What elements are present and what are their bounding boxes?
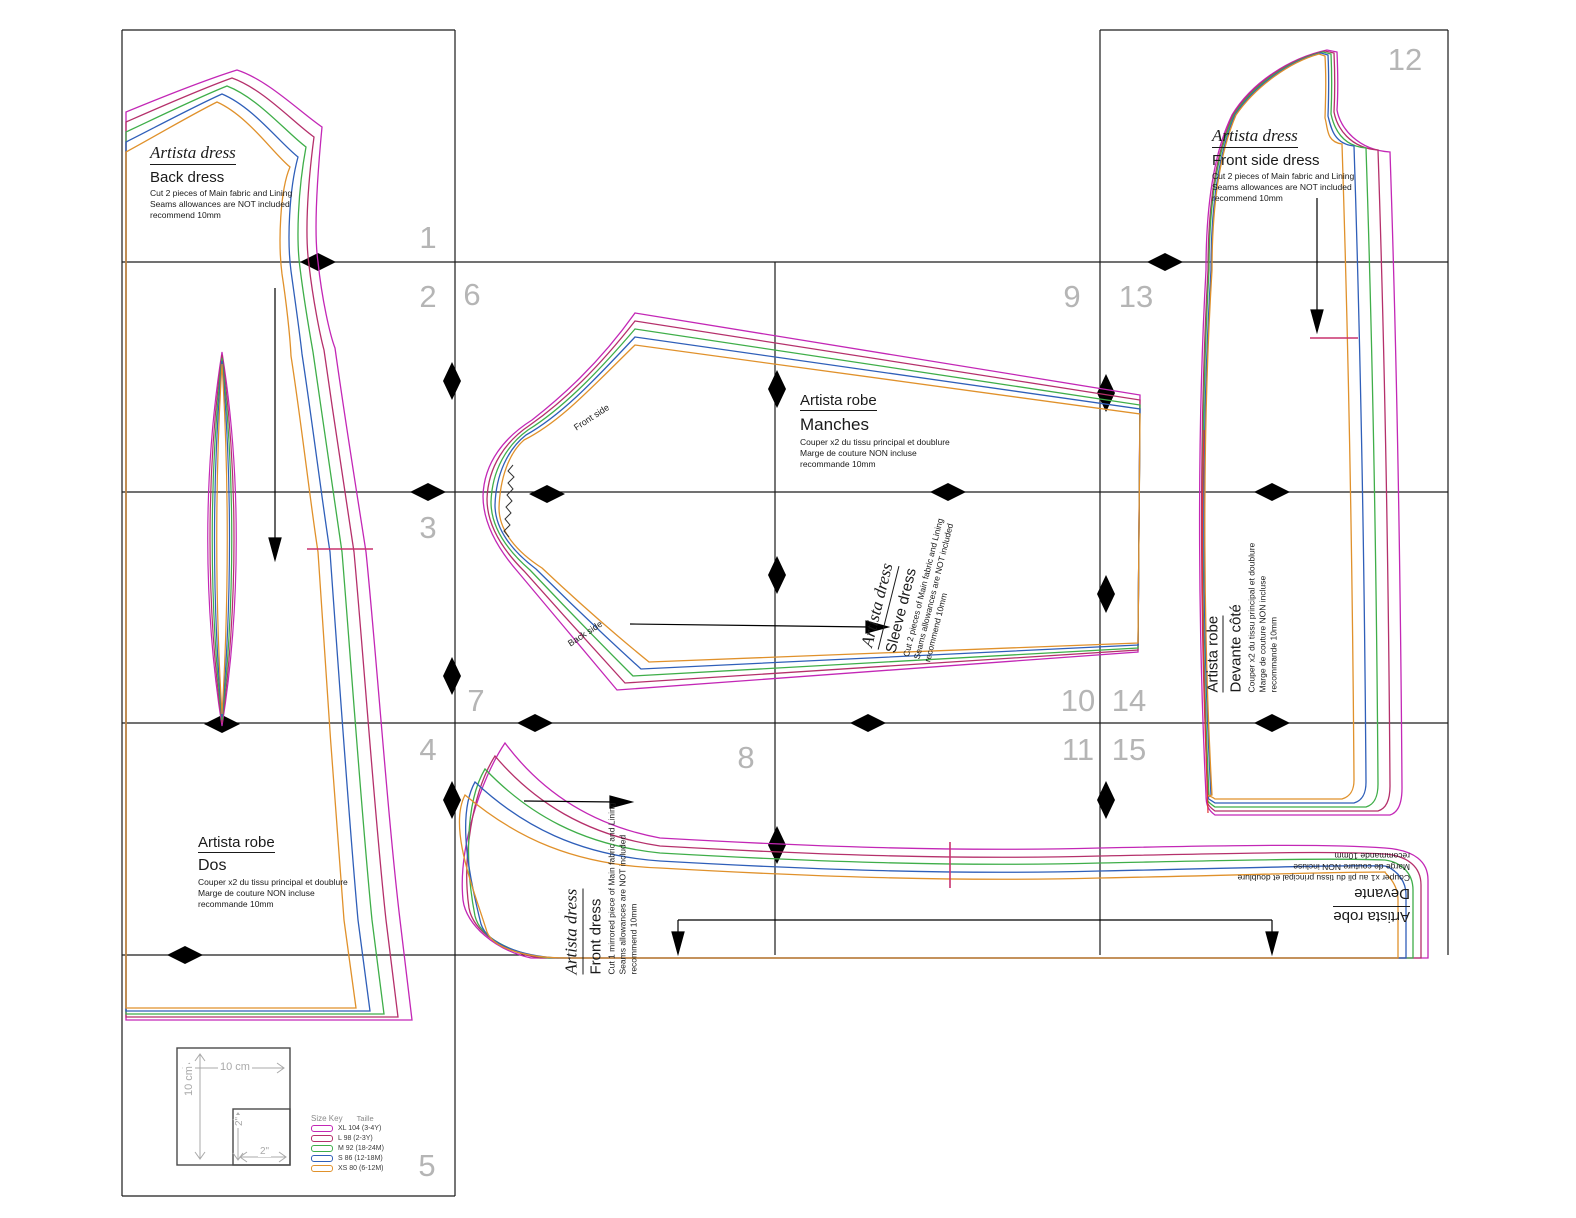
- size-key-taille: Taille: [357, 1114, 374, 1123]
- pattern-sheet: 1 2 3 4 5 6 7 8 9 10 11 12 13 14 15 Arti…: [0, 0, 1576, 1218]
- size-key-title: Size Key: [311, 1114, 343, 1123]
- label-devante-cote: Artista robe Devante côté Couper x2 du t…: [1205, 513, 1280, 693]
- size-swatch: [311, 1135, 333, 1142]
- inner-width-label: 2": [258, 1146, 271, 1157]
- tile-number-6: 6: [463, 277, 480, 313]
- size-swatch: [311, 1125, 333, 1132]
- size-label: L 98 (2-3Y): [338, 1135, 373, 1142]
- tile-number-8: 8: [737, 740, 754, 776]
- tile-number-2: 2: [419, 279, 436, 315]
- back-grain-arrow: [269, 288, 281, 560]
- tile-number-14: 14: [1112, 683, 1146, 719]
- size-key-rows: XL 104 (3-4Y)L 98 (2-3Y)M 92 (18-24M)S 8…: [311, 1123, 421, 1173]
- tile-number-4: 4: [419, 732, 436, 768]
- size-swatch: [311, 1145, 333, 1152]
- size-key-row: XS 80 (6-12M): [311, 1163, 421, 1173]
- narrow-tie-piece-outline: [208, 352, 237, 726]
- size-key-row: M 92 (18-24M): [311, 1143, 421, 1153]
- piece-note: Couper x2 du tissu principal et doublure…: [198, 877, 388, 910]
- gather-squiggle: [504, 465, 514, 537]
- scale-height-label: 10 cm: [183, 1064, 195, 1098]
- piece-title: Artista dress: [562, 889, 584, 975]
- piece-title: Artista robe: [198, 834, 275, 853]
- size-swatch: [311, 1155, 333, 1162]
- tile-number-3: 3: [419, 510, 436, 546]
- size-label: M 92 (18-24M): [338, 1145, 384, 1152]
- piece-note: Couper x2 du tissu principal et doublure…: [800, 437, 1000, 470]
- piece-name: Manches: [800, 415, 1000, 435]
- tile-number-15: 15: [1112, 732, 1146, 768]
- tile-number-13: 13: [1119, 279, 1153, 315]
- inner-height-label: 2": [234, 1115, 245, 1128]
- size-key-row: L 98 (2-3Y): [311, 1133, 421, 1143]
- scale-width-label: 10 cm: [218, 1061, 252, 1073]
- size-key: Size KeyTaille XL 104 (3-4Y)L 98 (2-3Y)M…: [311, 1114, 421, 1173]
- piece-title: Artista robe: [1333, 906, 1410, 925]
- tile-number-12: 12: [1388, 42, 1422, 78]
- piece-title: Artista dress: [1212, 126, 1298, 148]
- piece-note: Couper x1 au pli du tissu principal et d…: [1215, 850, 1410, 883]
- piece-note: Cut 2 pieces of Main fabric and Lining S…: [150, 188, 292, 221]
- label-devante: Artista robe Devante Couper x1 au pli du…: [1215, 850, 1410, 925]
- label-manches: Artista robe Manches Couper x2 du tissu …: [800, 392, 1000, 470]
- piece-title: Artista dress: [150, 143, 236, 165]
- piece-name: Dos: [198, 857, 388, 875]
- size-label: XS 80 (6-12M): [338, 1165, 384, 1172]
- label-dos: Artista robe Dos Couper x2 du tissu prin…: [198, 834, 388, 910]
- front-side-grain-arrow: [1311, 198, 1323, 332]
- label-front-dress: Artista dress Front dress Cut 1 mirrored…: [562, 790, 640, 975]
- tile-number-10: 10: [1061, 683, 1095, 719]
- tile-number-1: 1: [419, 220, 436, 256]
- size-label: S 86 (12-18M): [338, 1155, 383, 1162]
- piece-name: Devante: [1215, 885, 1410, 902]
- piece-note: Cut 2 pieces of Main fabric and Lining S…: [1212, 171, 1397, 204]
- fold-bracket: [672, 920, 1278, 954]
- piece-note: Couper x2 du tissu principal et doublure…: [1247, 513, 1280, 693]
- size-swatch: [311, 1165, 333, 1172]
- piece-title: Artista robe: [1205, 616, 1224, 693]
- size-key-row: XL 104 (3-4Y): [311, 1123, 421, 1133]
- label-front-side-dress: Artista dress Front side dress Cut 2 pie…: [1212, 126, 1397, 204]
- piece-name: Back dress: [150, 169, 292, 186]
- size-key-row: S 86 (12-18M): [311, 1153, 421, 1163]
- piece-note: Cut 1 mirrored piece of Main fabric and …: [607, 790, 640, 975]
- tile-number-7: 7: [467, 683, 484, 719]
- piece-name: Devante côté: [1228, 513, 1245, 693]
- tile-number-9: 9: [1063, 279, 1080, 315]
- piece-name: Front side dress: [1212, 152, 1397, 169]
- piece-name: Front dress: [588, 790, 605, 975]
- tile-number-11: 11: [1062, 732, 1094, 768]
- piece-title: Artista robe: [800, 392, 877, 411]
- size-label: XL 104 (3-4Y): [338, 1125, 381, 1132]
- sleeve-grain-arrow: [630, 621, 888, 633]
- label-back-dress: Artista dress Back dress Cut 2 pieces of…: [150, 143, 292, 221]
